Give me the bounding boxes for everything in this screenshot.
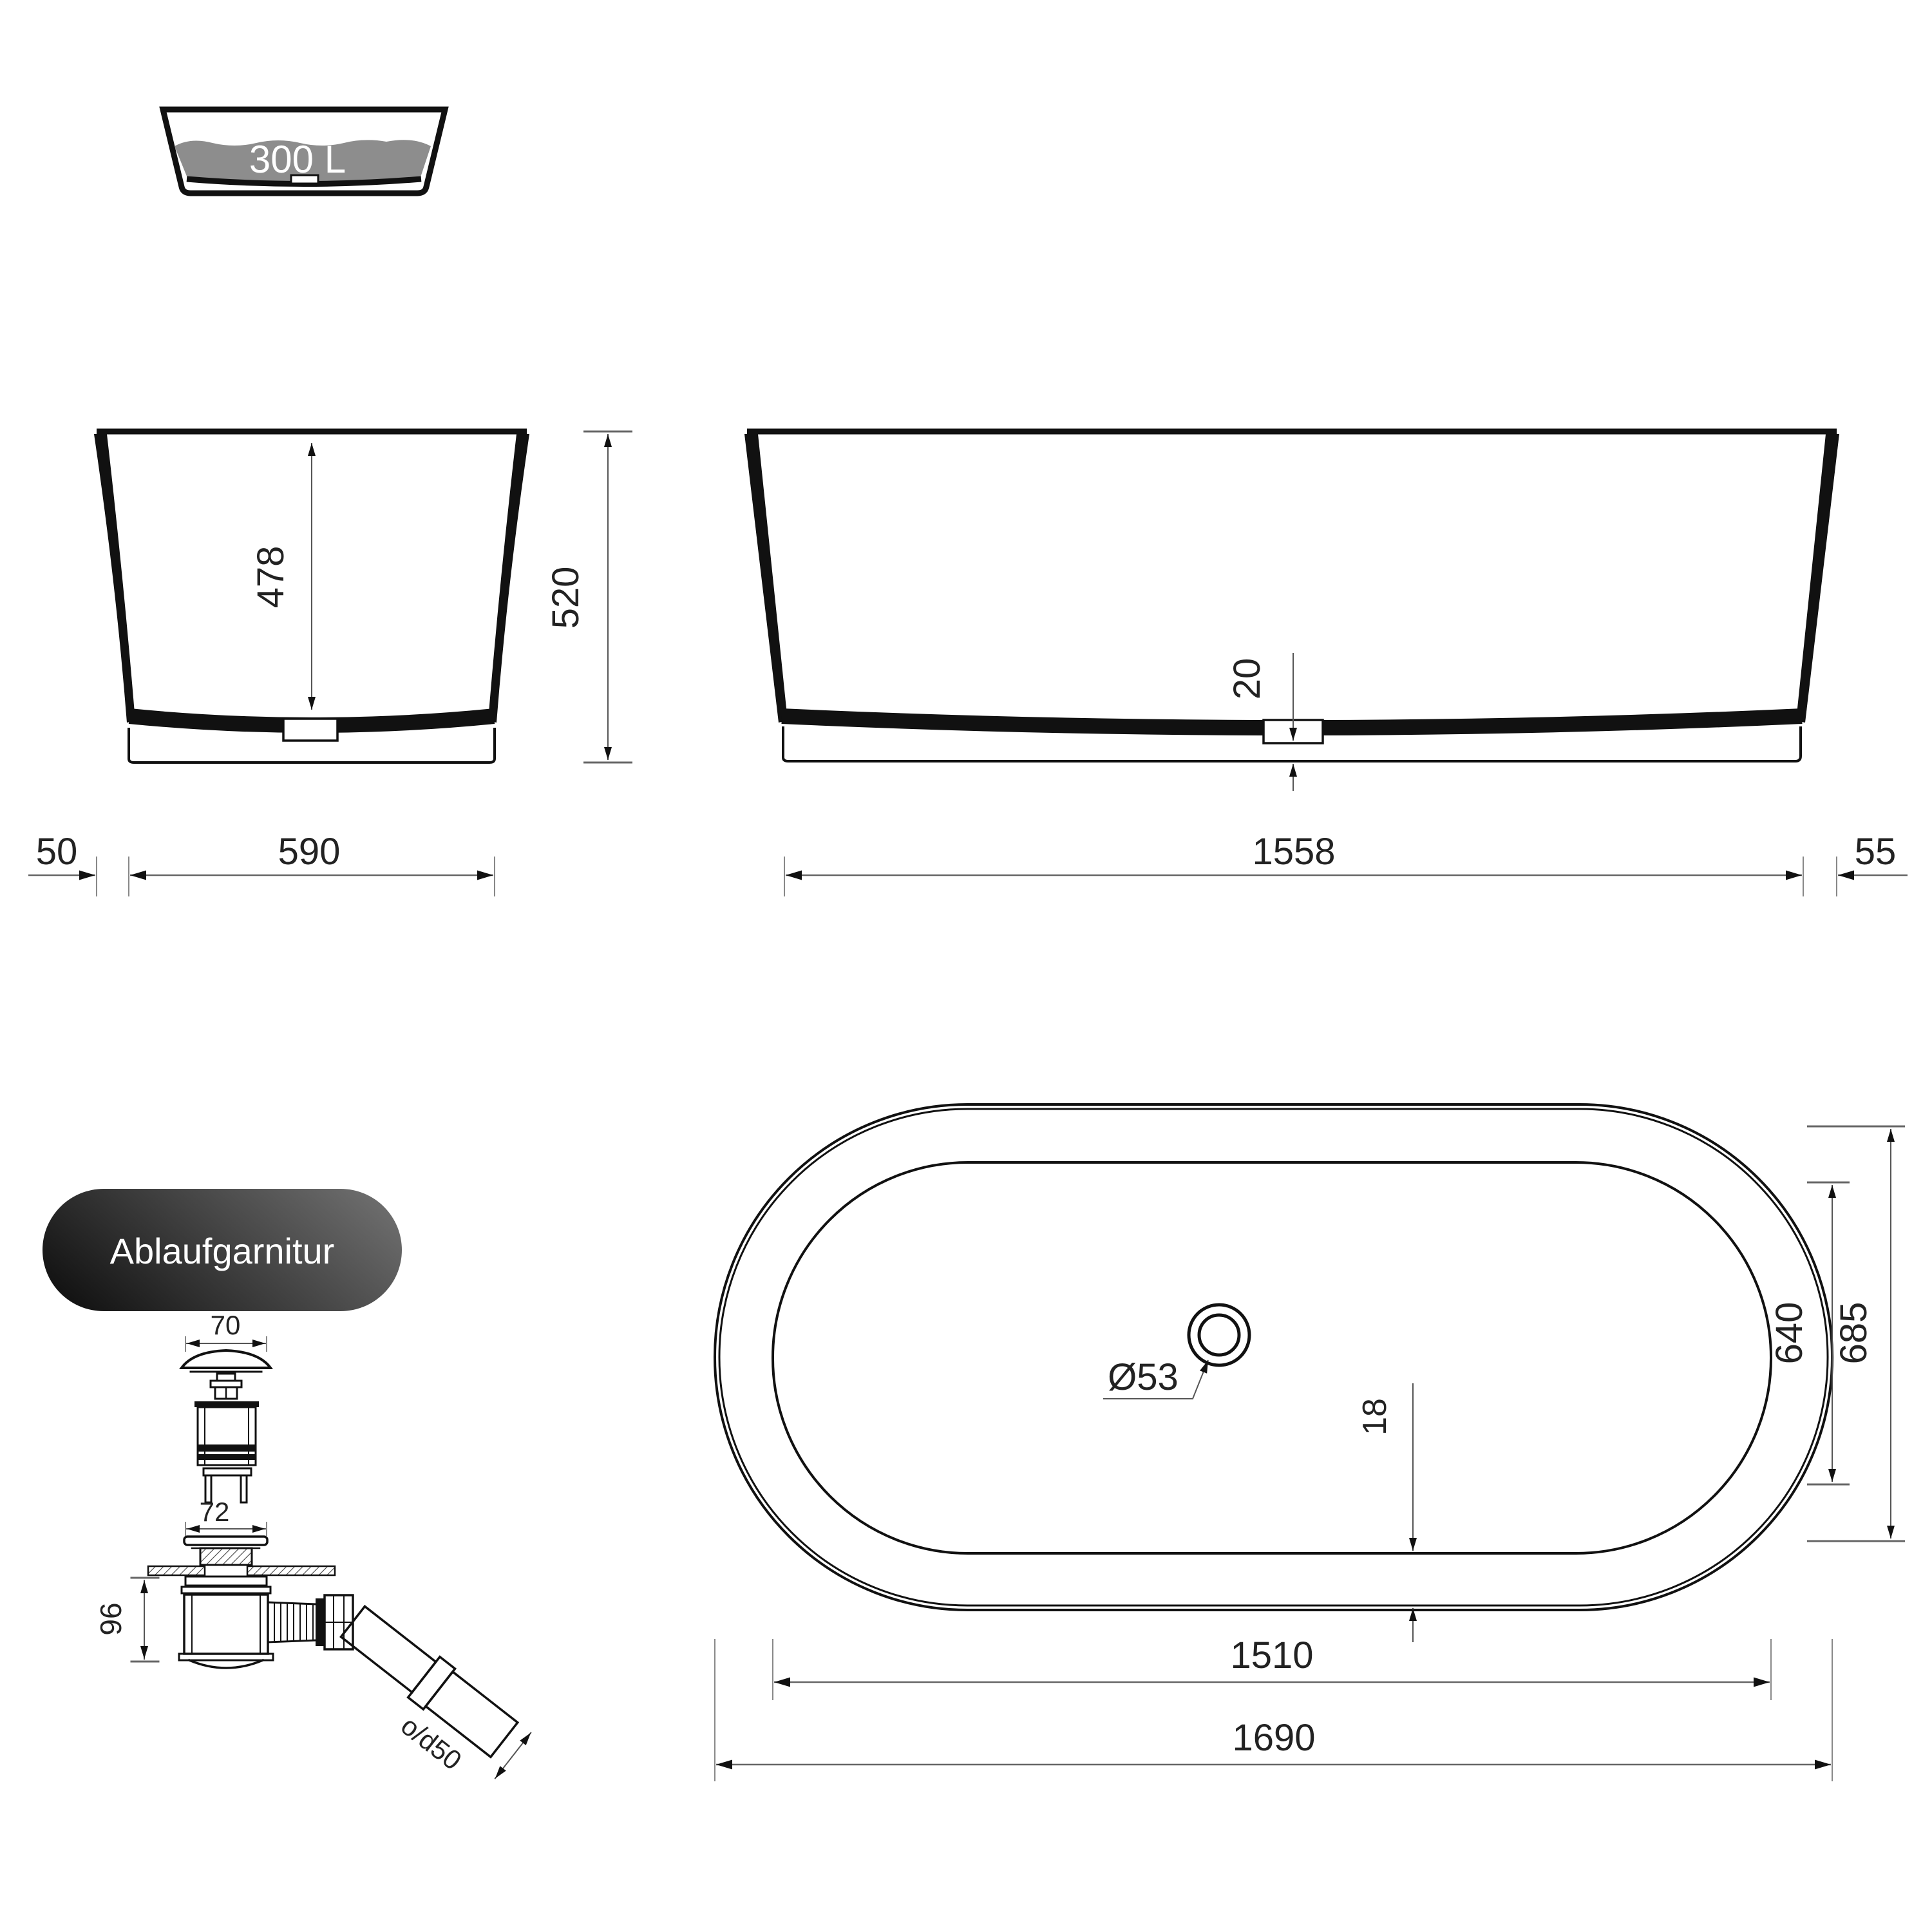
compression-nut-ribs — [325, 1595, 353, 1649]
end-left-wall — [94, 434, 135, 723]
dim-inner-width-label: 640 — [1768, 1302, 1810, 1365]
angled-outlet-pipe: o/d50 — [314, 1601, 533, 1799]
locknut-plate — [182, 1587, 270, 1593]
side-view: 20 1558 55 — [744, 431, 1908, 896]
outlet-bottom — [268, 1640, 316, 1642]
outlet-threads — [274, 1603, 313, 1642]
dim-base-length-label: 1558 — [1252, 831, 1335, 873]
dim-base-length: 1558 — [784, 831, 1803, 896]
drain-kit-label: Ablaufgarnitur — [110, 1231, 335, 1271]
end-view: 478 520 50 590 — [28, 431, 632, 896]
dim-plug-cap-width: 70 — [185, 1310, 267, 1351]
mounting-plate-right — [247, 1566, 335, 1575]
drain-fitting-drawing: 70 72 — [94, 1310, 533, 1799]
dim-total-height-label: 520 — [545, 567, 587, 629]
side-left-wall — [744, 434, 788, 723]
dim-outer-width-label: 685 — [1833, 1302, 1875, 1365]
plug-stem-1 — [217, 1374, 235, 1381]
drain-hole-inner — [1199, 1315, 1239, 1355]
dim-total-height: 520 — [545, 431, 632, 762]
dim-outer-width: 685 — [1807, 1126, 1905, 1541]
bathtub-drawing-canvas: 300 L 478 520 50 590 — [0, 0, 1932, 1932]
dim-base-width-label: 590 — [278, 831, 341, 873]
side-right-wall — [1796, 434, 1839, 723]
capacity-icon: 300 L — [163, 109, 445, 193]
dim-outlet-pipe-label: o/d50 — [395, 1710, 468, 1776]
technical-drawing-page: 300 L 478 520 50 590 — [0, 0, 1932, 1932]
dim-rim-overhang-right: 55 — [1837, 831, 1908, 896]
threaded-body — [200, 1548, 252, 1565]
dim-rim-overhang-right-label: 55 — [1855, 831, 1897, 873]
capacity-label: 300 L — [249, 138, 346, 181]
plug-cap — [182, 1350, 270, 1368]
dim-inner-length-label: 1510 — [1230, 1634, 1313, 1676]
pipe-diameter-arrow — [495, 1733, 531, 1779]
dim-plug-cap-width-label: 70 — [211, 1310, 241, 1340]
pipe-coupling — [408, 1657, 455, 1710]
drain-flange — [184, 1537, 267, 1545]
dim-drain-diameter-label: Ø53 — [1108, 1356, 1179, 1398]
cylinder-ring-2 — [198, 1454, 256, 1460]
dim-flange-width: 72 — [185, 1497, 267, 1535]
end-right-wall — [488, 434, 529, 723]
dim-outer-length-label: 1690 — [1232, 1717, 1315, 1759]
top-view: Ø53 18 640 685 1510 — [715, 1104, 1905, 1781]
mounting-plate-left — [148, 1566, 205, 1575]
dim-base-width: 590 — [130, 831, 495, 896]
dim-inner-length: 1510 — [773, 1634, 1771, 1700]
bracket-top — [204, 1468, 251, 1475]
dim-inner-depth: 478 — [250, 443, 312, 710]
dim-rim-overhang-left-label: 50 — [36, 831, 78, 873]
dim-trap-height: 96 — [94, 1578, 158, 1662]
dim-drain-diameter: Ø53 — [1103, 1356, 1208, 1399]
trap-bottom-lip — [179, 1654, 273, 1660]
end-drain-mark — [283, 719, 337, 741]
outlet-top — [268, 1602, 316, 1604]
dim-rim-inset: 18 — [1356, 1383, 1413, 1642]
dim-trap-height-label: 96 — [94, 1602, 128, 1635]
dim-rim-inset-label: 18 — [1356, 1398, 1394, 1435]
dim-rim-overhang-left: 50 — [28, 831, 129, 896]
drain-kit-section: Ablaufgarnitur — [43, 1189, 402, 1311]
dim-inner-depth-label: 478 — [250, 546, 292, 609]
dim-flange-width-label: 72 — [200, 1497, 230, 1527]
cylinder-ring-1 — [198, 1444, 256, 1452]
bracket-leg-right — [241, 1475, 247, 1502]
locknut-flange — [185, 1577, 267, 1586]
trap-bottom-cup — [189, 1660, 263, 1668]
top-basin-edge — [773, 1162, 1771, 1553]
outlet-gasket — [316, 1598, 325, 1646]
trap-body — [184, 1595, 268, 1654]
dim-bottom-thickness-label: 20 — [1226, 658, 1268, 700]
